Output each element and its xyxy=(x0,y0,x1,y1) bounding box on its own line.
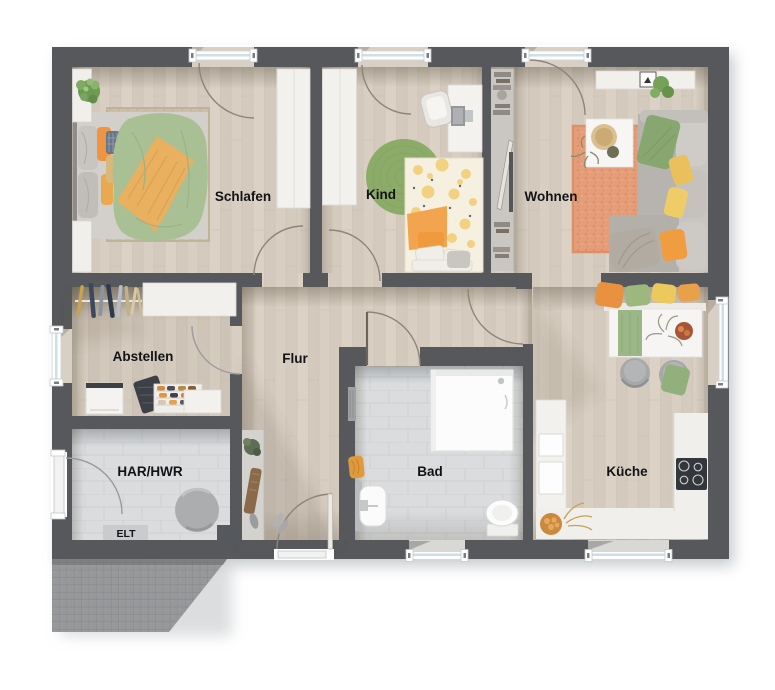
svg-text:Küche: Küche xyxy=(606,464,648,479)
svg-text:Schlafen: Schlafen xyxy=(215,189,271,204)
svg-text:Flur: Flur xyxy=(282,351,308,366)
svg-text:Abstellen: Abstellen xyxy=(113,349,174,364)
svg-text:Kind: Kind xyxy=(366,187,396,202)
svg-text:HAR/HWR: HAR/HWR xyxy=(117,464,182,479)
svg-text:Wohnen: Wohnen xyxy=(525,189,578,204)
svg-text:ELT: ELT xyxy=(116,528,136,540)
svg-text:Bad: Bad xyxy=(417,464,443,479)
